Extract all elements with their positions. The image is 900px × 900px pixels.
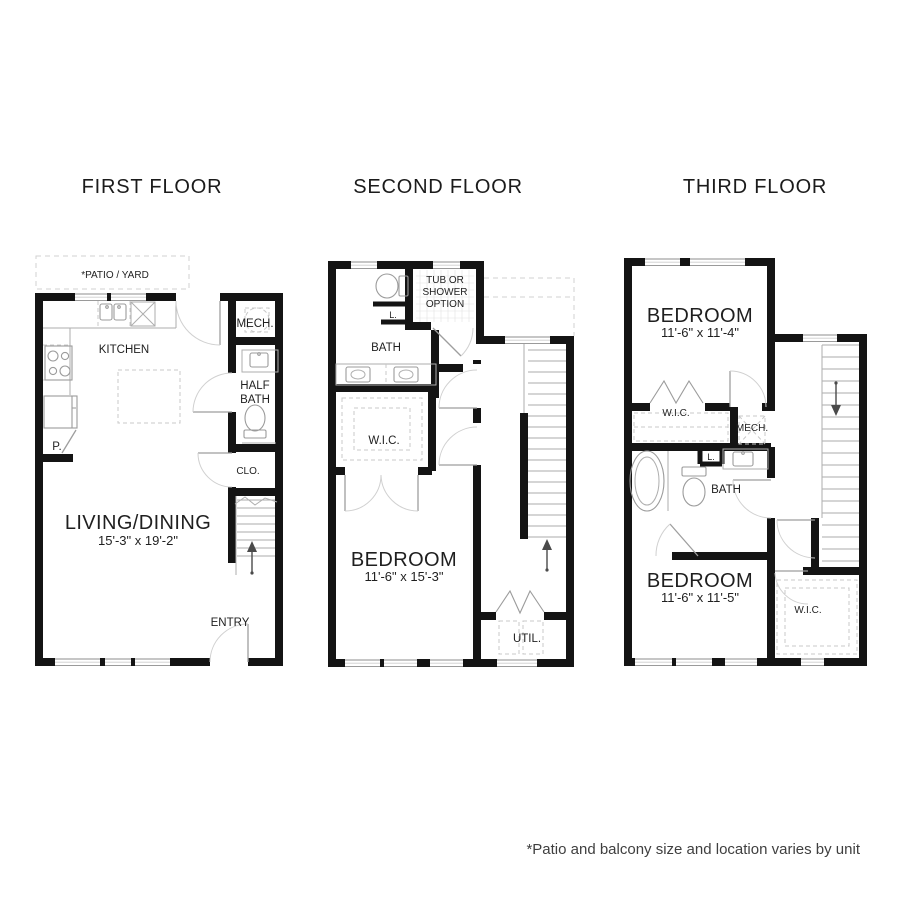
bedroom-dims: 11'-6" x 15'-3" [365, 569, 444, 584]
bedroom2-label: BEDROOM [647, 570, 753, 592]
halfbath-label-line2: BATH [240, 394, 270, 406]
refrigerator-icon [44, 396, 77, 428]
kitchen-sink-icon [100, 304, 126, 320]
exterior-walls [39, 297, 279, 662]
bedroom1-door-arc [730, 371, 766, 407]
wic2-shelving-outline [777, 580, 857, 654]
entry-door-opening [210, 658, 248, 667]
wic1-doors-chevron [650, 381, 703, 403]
room-labels: BEDROOM 11'-6" x 11'-4" W.I.C. MECH. L. … [647, 305, 822, 616]
cooktop-icon [45, 346, 72, 380]
second-floor-plan: TUB OR SHOWER OPTION BATH L. W.I.C. BEDR… [320, 250, 582, 675]
patio-label: *PATIO / YARD [81, 270, 149, 281]
interior-walls [332, 265, 570, 663]
mech-label: MECH. [736, 423, 768, 434]
living-dining-dims: 15'-3" x 19'-2" [98, 533, 178, 548]
first-floor-plan: *PATIO / YARD KITCHEN MECH. HALF BATH CL… [30, 250, 292, 675]
bath-label: BATH [371, 342, 401, 354]
bedroom2-door-arc [777, 520, 815, 558]
util-doors-chevron [496, 591, 544, 613]
kitchen-door-opening [176, 293, 220, 302]
stairs [235, 496, 277, 575]
stair-break-line [235, 497, 277, 505]
bath-vanity-icon [723, 449, 768, 469]
entry-label: ENTRY [211, 617, 250, 629]
windows [55, 293, 248, 667]
bath-inner-door-arc [656, 524, 670, 556]
floorplan-sheet: FIRST FLOOR SECOND FLOOR THIRD FLOOR [0, 0, 900, 900]
wic-french-door-arcs [345, 475, 418, 511]
wic-label: W.I.C. [368, 435, 399, 447]
kitchen-island-outline [118, 370, 180, 423]
wic2-label: W.I.C. [794, 605, 821, 616]
bathtub-icon [630, 451, 668, 511]
third-floor-plan: BEDROOM 11'-6" x 11'-4" W.I.C. MECH. L. … [610, 250, 872, 675]
kitchen-door-arc [176, 301, 220, 345]
toilet-icon [376, 274, 408, 298]
toilet-icon [242, 405, 276, 443]
stairs [524, 344, 566, 572]
tub-option-label-line2: SHOWER [423, 287, 468, 298]
stairs [822, 345, 859, 561]
interior-walls [628, 338, 863, 662]
linen-label: L. [389, 310, 397, 320]
toilet-icon [682, 467, 706, 506]
bedroom1-label: BEDROOM [647, 305, 753, 327]
halfbath-label-line1: HALF [240, 380, 269, 392]
tub-option-label-line3: OPTION [426, 299, 464, 310]
entry-door-arc [210, 624, 248, 662]
hall-door-arc [439, 370, 477, 408]
tubroom-door-arc [461, 328, 473, 356]
pantry-door-line [62, 430, 76, 453]
footnote: *Patio and balcony size and location var… [526, 841, 860, 858]
living-dining-label: LIVING/DINING [65, 512, 211, 534]
first-floor-title: FIRST FLOOR [21, 176, 283, 199]
bedroom-label: BEDROOM [351, 549, 457, 571]
halfbath-door-arc [193, 373, 232, 412]
roof-below-outline [484, 278, 574, 336]
linen-label: L. [707, 452, 715, 462]
range-icon [131, 302, 155, 326]
windows [345, 261, 550, 668]
tub-option-label-line1: TUB OR [426, 275, 464, 286]
bath-label: BATH [711, 484, 741, 496]
wic1-label: W.I.C. [662, 408, 689, 419]
mech-label: MECH. [236, 318, 273, 330]
wic2-door-arc [775, 573, 808, 604]
pantry-label: P. [52, 441, 61, 453]
bedroom2-dims: 11'-6" x 11'-5" [661, 590, 739, 605]
third-floor-title: THIRD FLOOR [624, 176, 886, 199]
exterior-walls [332, 265, 570, 663]
bath-vanity-icon [336, 364, 436, 385]
bedroom1-dims: 11'-6" x 11'-4" [661, 325, 739, 340]
second-floor-title: SECOND FLOOR [307, 176, 569, 199]
doors [176, 301, 248, 662]
bedroom-door-arc [439, 427, 477, 465]
util-label: UTIL. [513, 633, 541, 645]
kitchen-label: KITCHEN [99, 344, 149, 356]
closet-door-arc [198, 453, 232, 487]
wic-shelving-outline [342, 398, 422, 460]
closet-label: CLO. [236, 466, 259, 477]
halfbath-vanity-icon [242, 350, 278, 372]
